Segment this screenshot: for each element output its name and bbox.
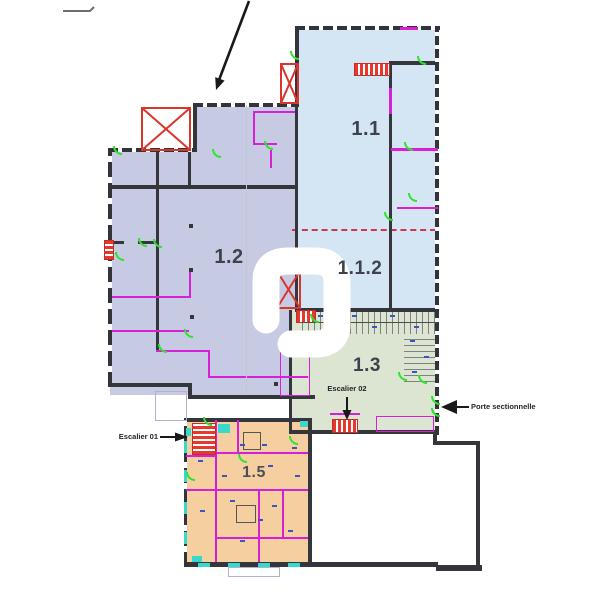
watermark-logo (266, 261, 337, 344)
zone-label-1-2: 1.2 (203, 246, 255, 269)
pointer-arrow (215, 1, 249, 90)
zone-label-1-1-2: 1.1.2 (332, 258, 388, 280)
scale-mark (63, 7, 94, 11)
plan-overlay (0, 0, 600, 600)
skylight-x-icon (277, 271, 300, 308)
callout-escalier-02: Escalier 02 (316, 384, 378, 393)
callout-escalier-01: Escalier 01 (108, 432, 158, 441)
zone-label-1-5: 1.5 (228, 464, 280, 482)
zone-label-1-3: 1.3 (341, 355, 393, 377)
floorplan-canvas: 1.1 1.2 1.1.2 1.3 1.5 Escalier 01 Escali… (0, 0, 600, 600)
skylight-x-icon (142, 108, 190, 150)
escalier-02-arrow (343, 397, 352, 420)
porte-sectionnelle-arrow (441, 400, 469, 414)
callout-porte-sectionnelle: Porte sectionnelle (471, 402, 536, 411)
skylight-x-icon (281, 64, 298, 103)
escalier-01-arrow (160, 433, 188, 442)
zone-label-1-1: 1.1 (340, 118, 392, 141)
